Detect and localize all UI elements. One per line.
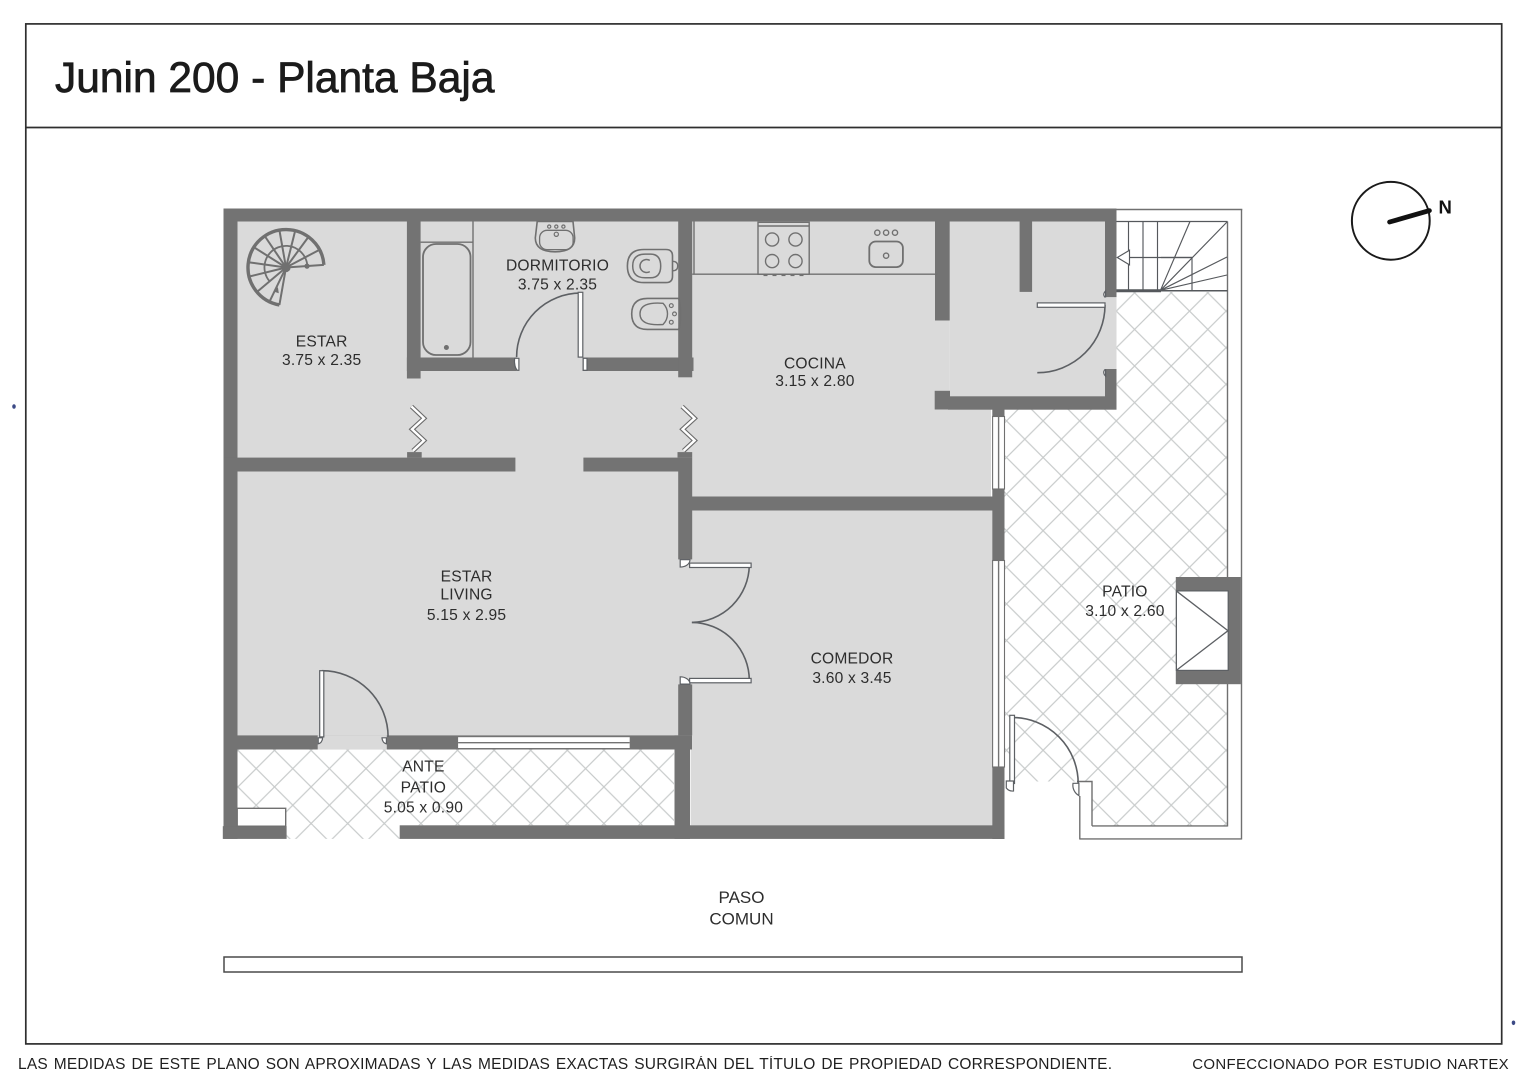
svg-text:LAS MEDIDAS DE ESTE PLANO SON: LAS MEDIDAS DE ESTE PLANO SON APROXIMADA… [18, 1056, 1112, 1073]
svg-text:N: N [1439, 197, 1452, 218]
svg-text:Junin 200 - Planta Baja: Junin 200 - Planta Baja [55, 55, 495, 102]
svg-text:COMUN: COMUN [709, 910, 773, 929]
svg-text:PASO: PASO [719, 888, 765, 907]
svg-text:3.60 x 3.45: 3.60 x 3.45 [812, 670, 891, 687]
svg-text:LIVING: LIVING [440, 587, 492, 604]
svg-text:COMEDOR: COMEDOR [811, 651, 894, 668]
svg-text:5.05 x 0.90: 5.05 x 0.90 [384, 799, 463, 816]
svg-text:DORMITORIO: DORMITORIO [506, 258, 609, 275]
svg-text:3.15 x 2.80: 3.15 x 2.80 [775, 373, 854, 390]
svg-text:ESTAR: ESTAR [441, 568, 493, 585]
svg-text:CONFECCIONADO POR ESTUDIO NART: CONFECCIONADO POR ESTUDIO NARTEX [1192, 1056, 1509, 1073]
svg-text:ESTAR: ESTAR [296, 334, 348, 351]
svg-text:PATIO: PATIO [1102, 584, 1147, 601]
svg-text:COCINA: COCINA [784, 356, 846, 373]
svg-text:3.75 x 2.35: 3.75 x 2.35 [518, 276, 597, 293]
svg-text:5.15 x 2.95: 5.15 x 2.95 [427, 607, 506, 624]
svg-text:3.75 x 2.35: 3.75 x 2.35 [282, 352, 361, 369]
svg-text:ANTE: ANTE [402, 759, 444, 776]
svg-text:PATIO: PATIO [401, 780, 446, 797]
svg-text:3.10 x 2.60: 3.10 x 2.60 [1085, 603, 1164, 620]
